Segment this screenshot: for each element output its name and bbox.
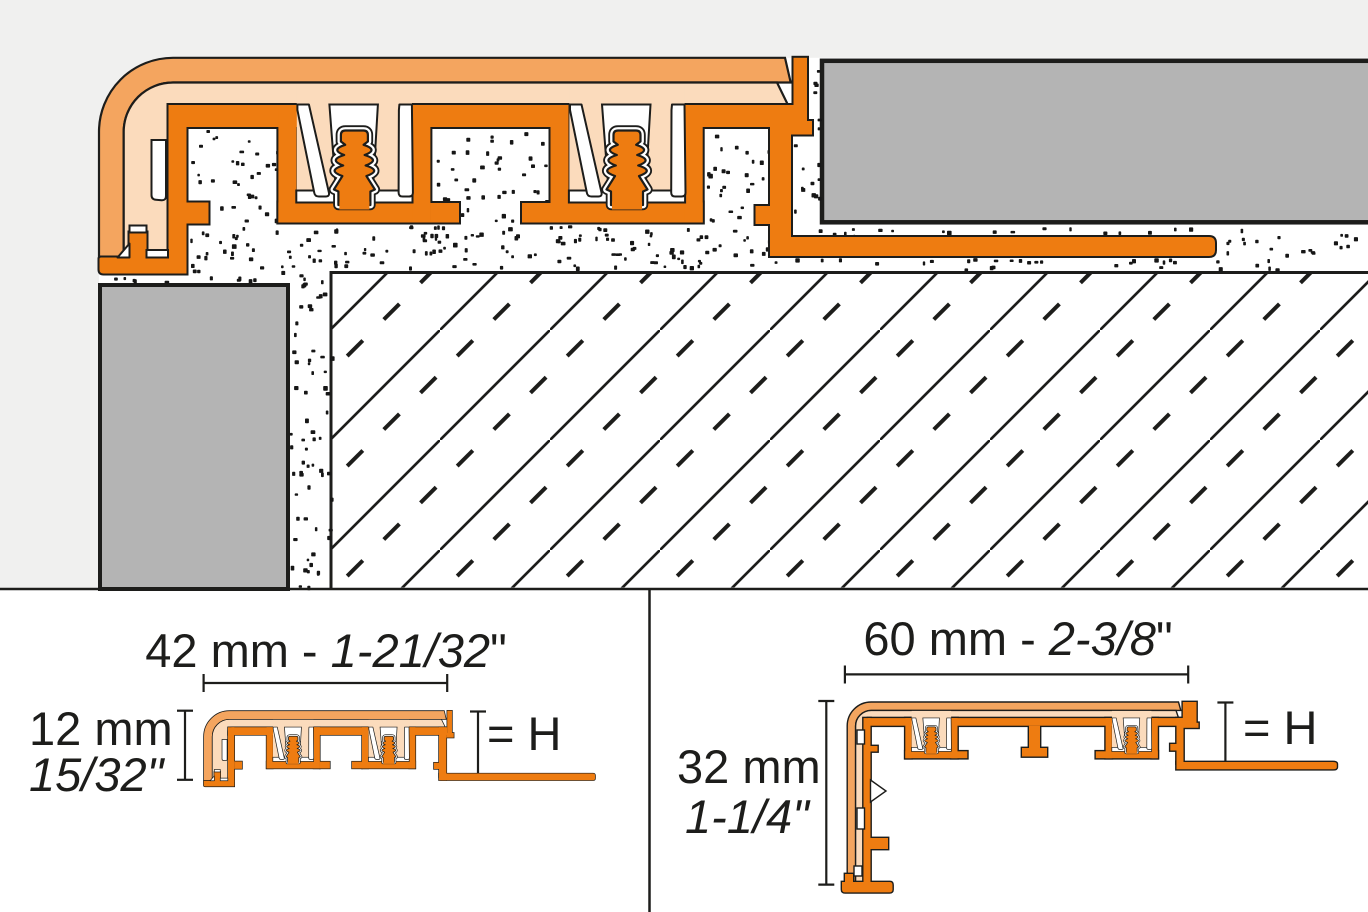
svg-text:= H: = H [1243,701,1317,754]
svg-text:32 mm: 32 mm [677,740,821,793]
svg-text:60 mm - 2-3/8": 60 mm - 2-3/8" [863,612,1172,665]
svg-text:= H: = H [487,707,561,760]
svg-text:42 mm - 1-21/32": 42 mm - 1-21/32" [145,624,507,677]
svg-text:15/32": 15/32" [29,748,166,801]
svg-text:1-1/4": 1-1/4" [685,790,811,843]
